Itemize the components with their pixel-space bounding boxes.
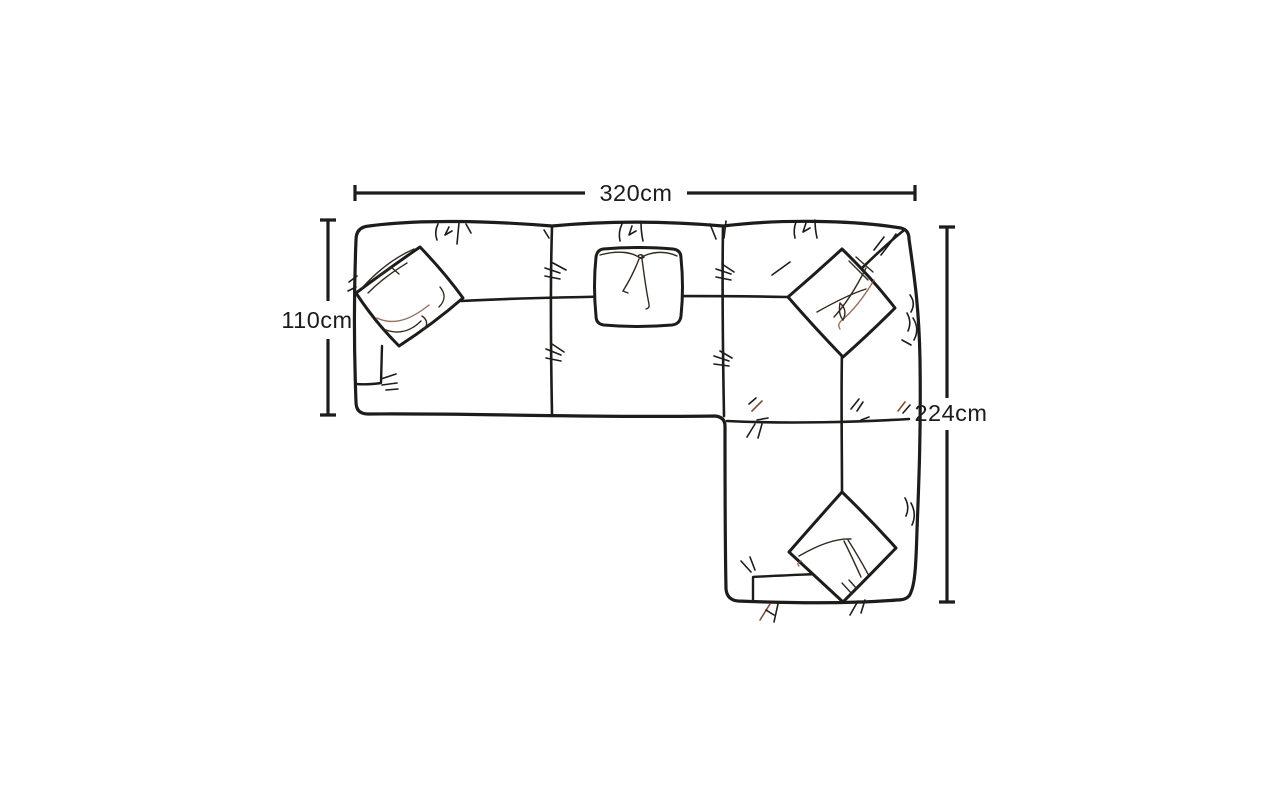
chaise-cross-seam [727,419,909,422]
chaise-arm-line [753,574,818,600]
scatter-cushion-chaise [789,492,896,602]
dimension-width-label: 320cm [599,180,672,206]
diagram-canvas: 320cm 110cm 224cm [0,0,1280,800]
scatter-cushion-middle [595,248,683,327]
dimension-length: 224cm [914,227,987,602]
cushions [356,247,896,602]
seat-seam-2 [723,227,724,416]
sofa-sketch [348,220,920,622]
scatter-cushion-corner [788,249,895,357]
dimension-width: 320cm [355,180,915,206]
seat-seam-1 [551,227,552,414]
sofa-dimension-diagram: 320cm 110cm 224cm [0,0,1280,800]
dimension-depth-label: 110cm [281,307,352,333]
left-arm-line [356,346,382,384]
arm-lines [356,346,818,600]
scatter-cushion-left [356,247,463,346]
dimension-depth: 110cm [281,220,352,415]
dimension-length-label: 224cm [914,400,987,426]
